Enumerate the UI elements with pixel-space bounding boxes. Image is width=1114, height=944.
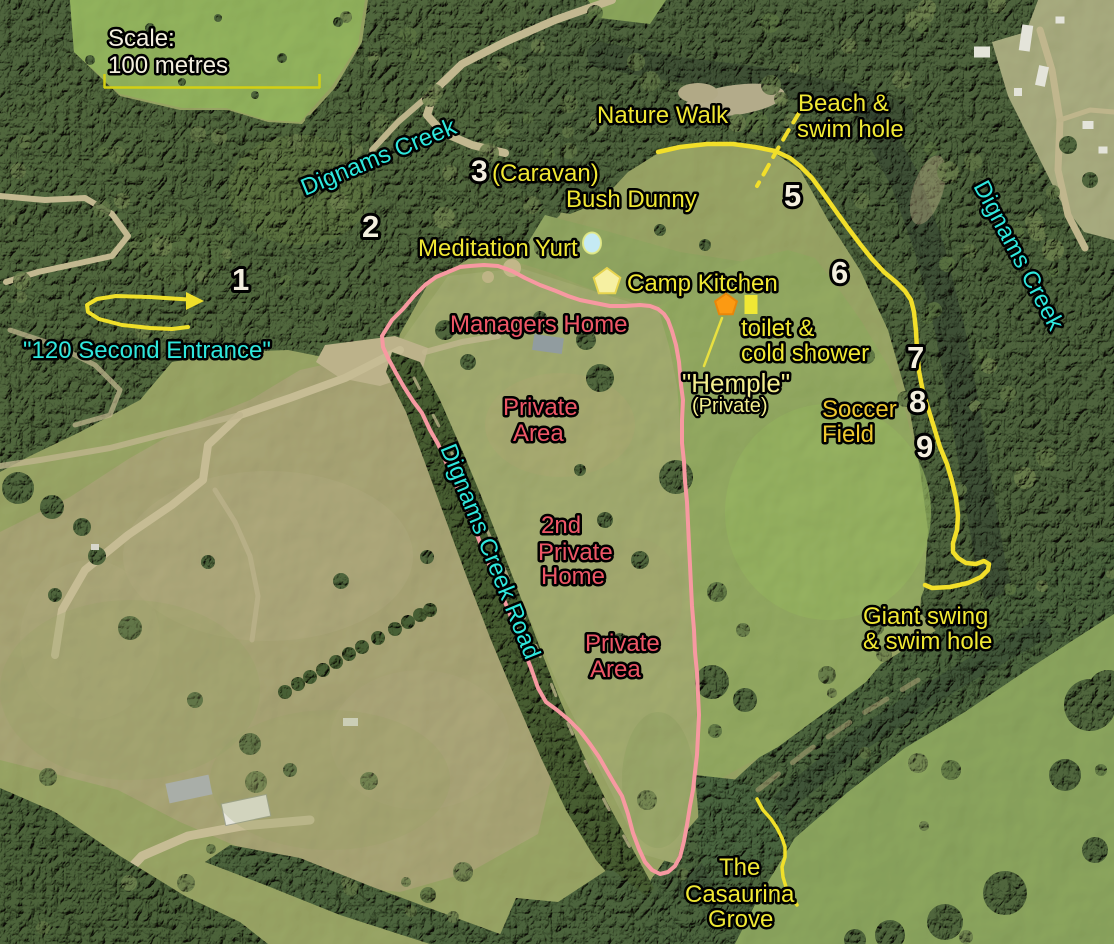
svg-text:(Caravan): (Caravan): [492, 160, 599, 187]
svg-text:3: 3: [471, 155, 488, 188]
svg-text:"Hemple": "Hemple": [682, 368, 790, 398]
svg-text:5: 5: [784, 178, 801, 213]
svg-text:1: 1: [232, 262, 249, 297]
svg-text:toilet &: toilet &: [741, 315, 814, 342]
svg-text:Grove: Grove: [708, 906, 773, 933]
svg-text:Field: Field: [822, 421, 874, 448]
svg-text:cold shower: cold shower: [741, 340, 869, 367]
svg-text:(Private): (Private): [692, 395, 768, 417]
svg-text:Bush Dunny: Bush Dunny: [566, 186, 697, 213]
svg-text:Area: Area: [590, 656, 641, 683]
svg-text:100 metres: 100 metres: [108, 52, 228, 79]
svg-text:"120 Second Entrance": "120 Second Entrance": [23, 337, 271, 364]
svg-text:Casaurina: Casaurina: [685, 881, 795, 908]
svg-text:2: 2: [362, 209, 379, 244]
svg-text:Nature Walk: Nature Walk: [597, 102, 729, 129]
svg-text:Managers Home: Managers Home: [450, 311, 627, 338]
svg-text:Scale:: Scale:: [108, 25, 175, 52]
svg-text:Private: Private: [538, 539, 613, 566]
svg-text:swim hole: swim hole: [797, 116, 904, 143]
svg-text:& swim hole: & swim hole: [863, 628, 992, 655]
svg-text:9: 9: [916, 429, 933, 464]
svg-text:8: 8: [909, 384, 926, 419]
svg-text:Soccer: Soccer: [822, 396, 897, 423]
svg-text:Home: Home: [541, 563, 605, 590]
svg-text:Camp Kitchen: Camp Kitchen: [627, 270, 778, 297]
svg-text:The: The: [719, 854, 760, 881]
svg-text:6: 6: [831, 255, 848, 290]
svg-text:2nd: 2nd: [541, 512, 581, 539]
svg-text:Beach &: Beach &: [798, 90, 889, 117]
svg-text:Meditation Yurt: Meditation Yurt: [418, 235, 578, 262]
svg-text:Giant swing: Giant swing: [863, 603, 988, 630]
svg-text:7: 7: [907, 340, 924, 375]
svg-text:Private: Private: [585, 630, 660, 657]
svg-text:Area: Area: [513, 420, 564, 447]
svg-text:Private: Private: [503, 394, 578, 421]
